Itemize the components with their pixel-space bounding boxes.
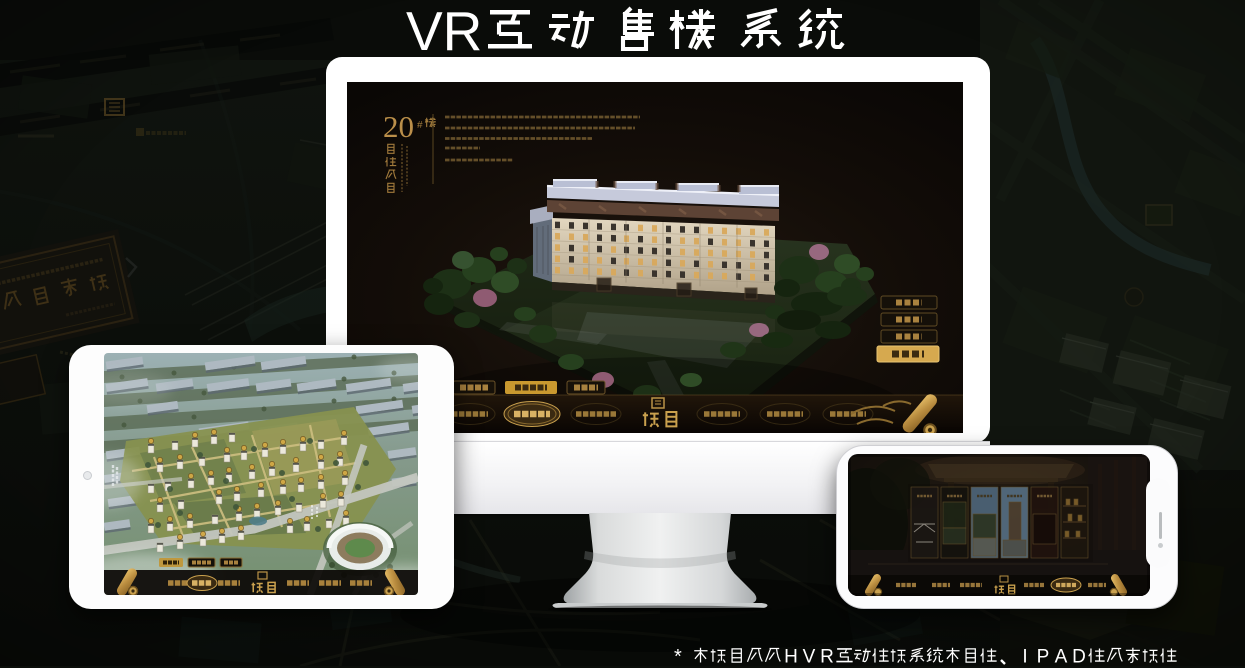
svg-text:VR: VR	[406, 0, 482, 58]
svg-text:#: #	[417, 120, 423, 131]
svg-text:20: 20	[383, 109, 414, 144]
svg-text:*: *	[674, 646, 682, 668]
svg-text:I: I	[1022, 647, 1027, 668]
svg-text:A: A	[1055, 647, 1068, 668]
svg-text:V: V	[803, 647, 816, 668]
svg-text:P: P	[1037, 647, 1050, 668]
svg-text:R: R	[820, 647, 834, 668]
svg-text:D: D	[1072, 647, 1086, 668]
svg-text:H: H	[784, 647, 798, 668]
